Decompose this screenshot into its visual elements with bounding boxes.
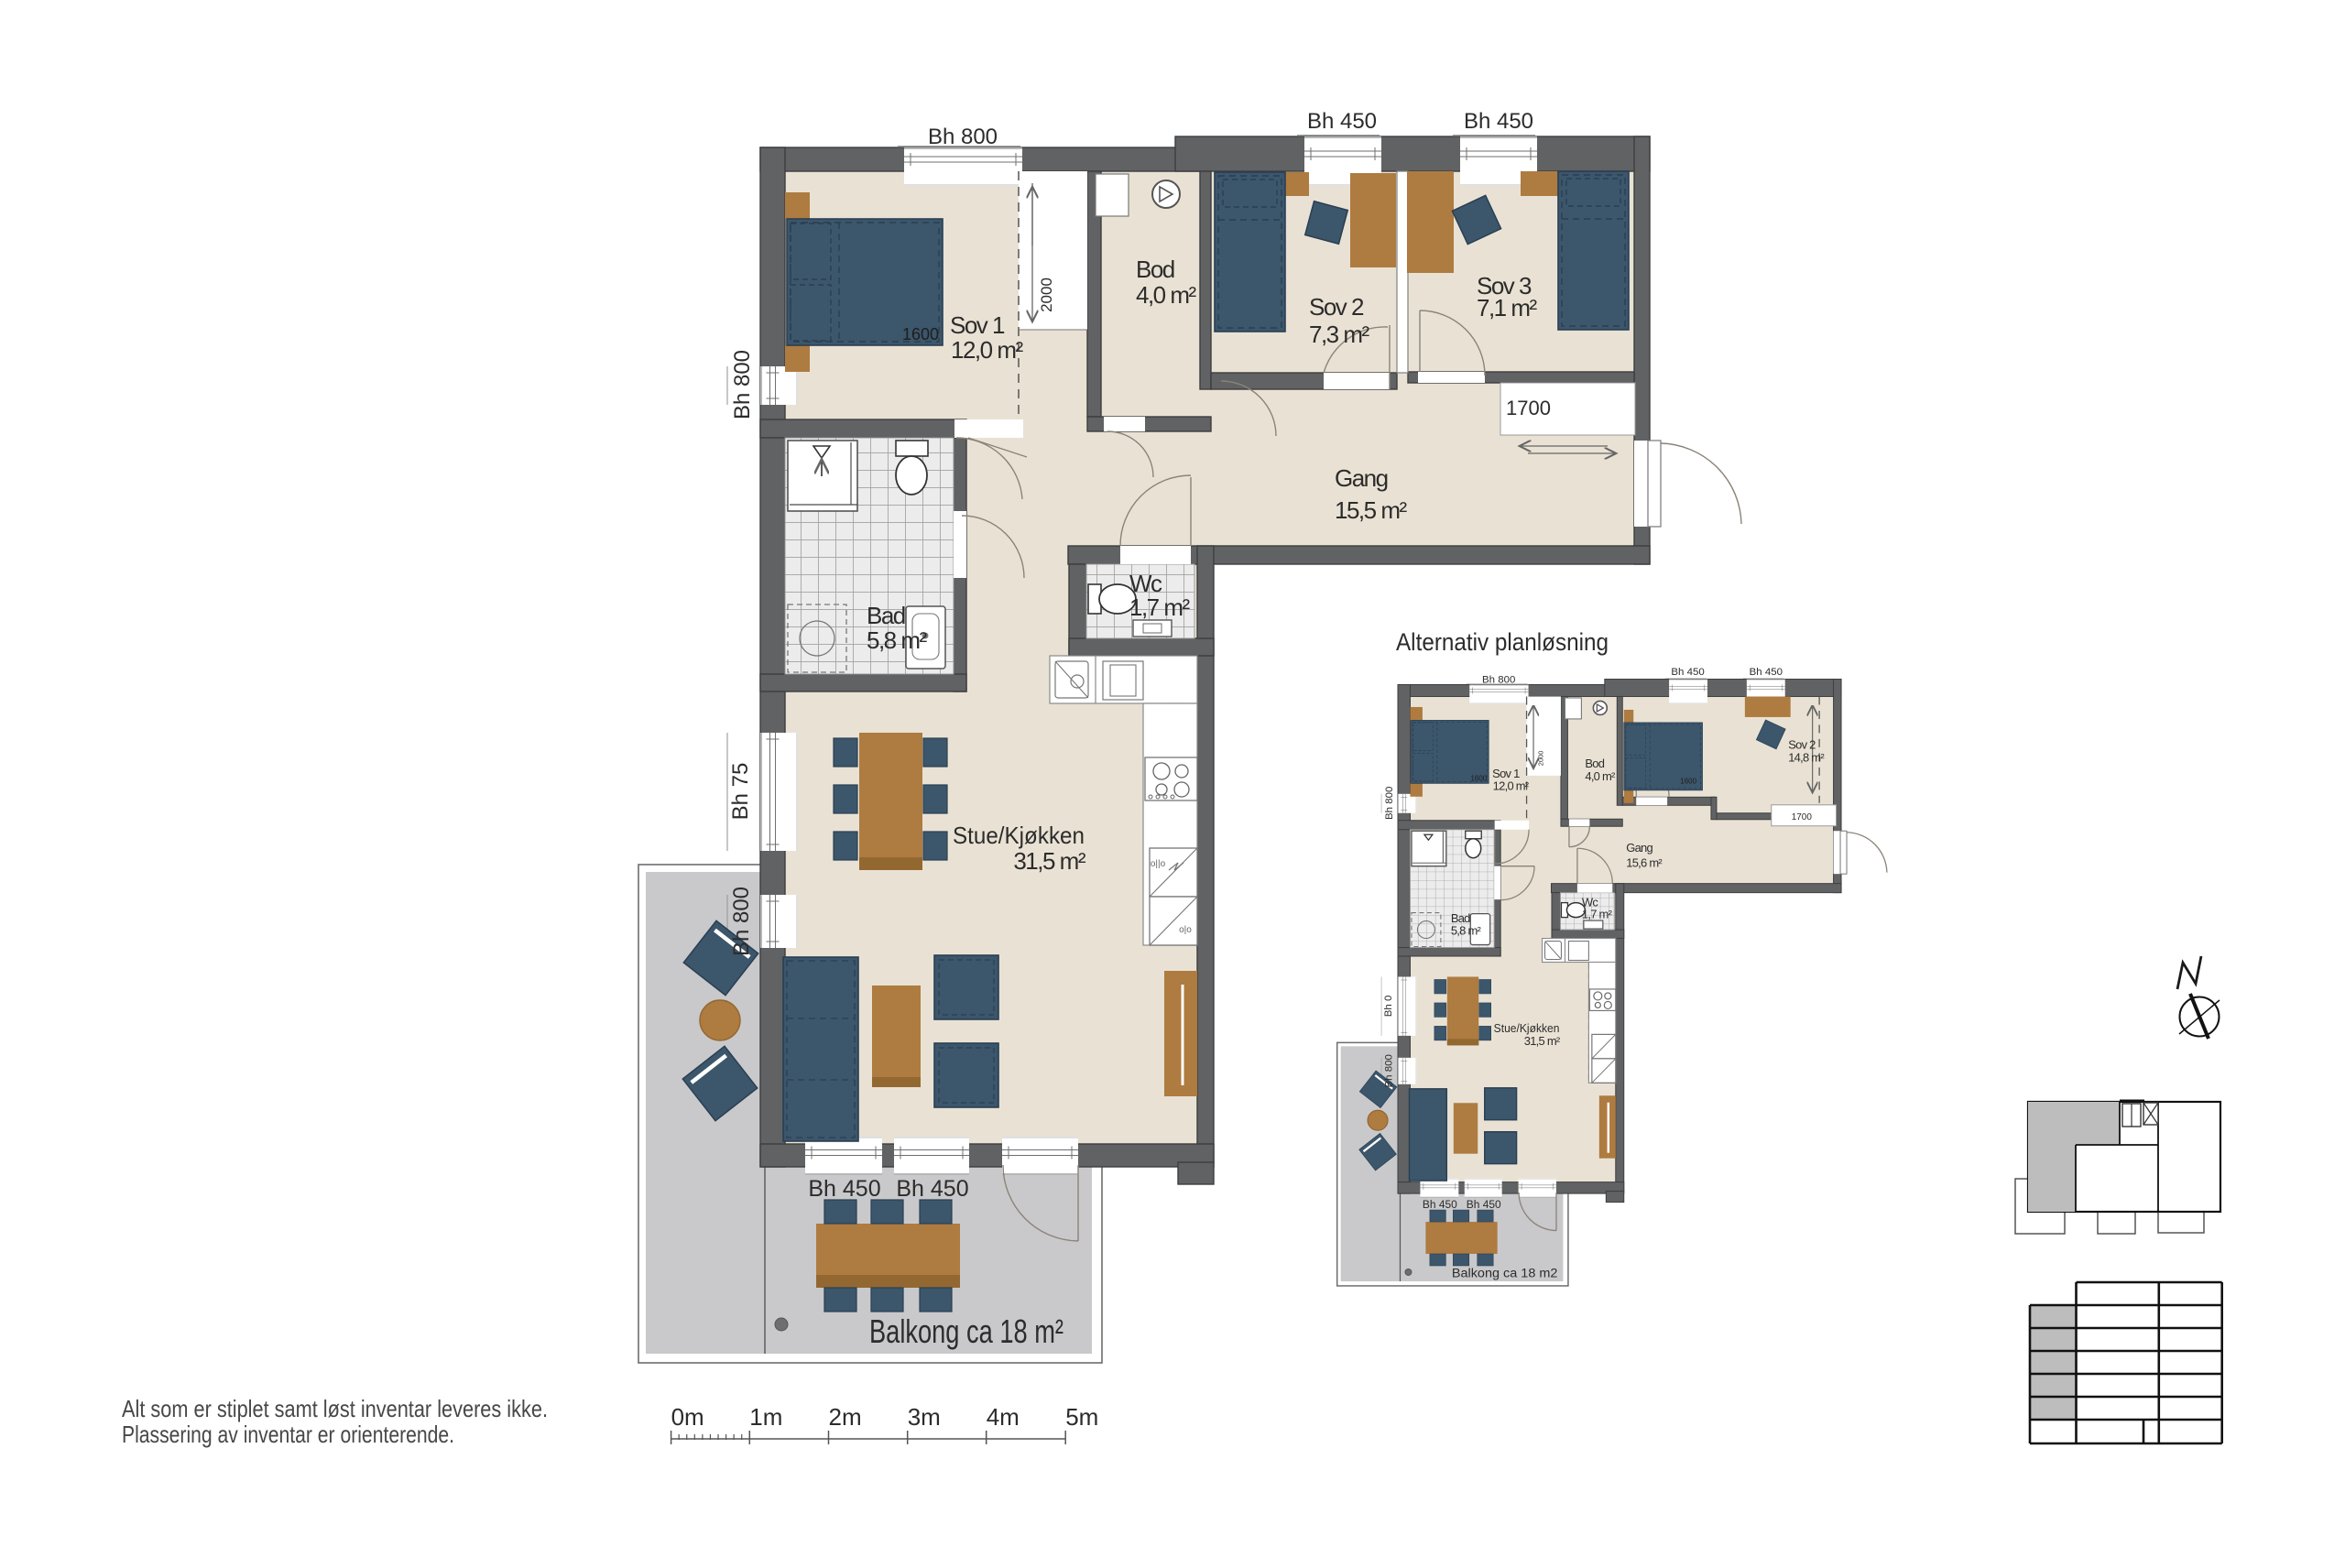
svg-text:Bh 450: Bh 450 [1307, 109, 1377, 134]
svg-text:1600: 1600 [902, 325, 939, 343]
svg-text:5,8 m²: 5,8 m² [1451, 924, 1482, 938]
svg-text:15,5 m²: 15,5 m² [1335, 496, 1407, 524]
svg-text:Bh 800: Bh 800 [730, 350, 755, 419]
svg-text:Stue/Kjøkken: Stue/Kjøkken [953, 822, 1085, 849]
svg-text:Alt som er stiplet samt løst i: Alt som er stiplet samt løst inventar le… [122, 1395, 548, 1422]
svg-text:5m: 5m [1065, 1403, 1098, 1431]
svg-text:Bh 800: Bh 800 [1384, 1054, 1395, 1087]
svg-text:Plassering av inventar er orie: Plassering av inventar er orienterende. [122, 1421, 454, 1448]
svg-text:Stue/Kjøkken: Stue/Kjøkken [1494, 1021, 1560, 1035]
svg-text:5,8 m²: 5,8 m² [867, 626, 928, 654]
svg-text:1,7 m²: 1,7 m² [1129, 593, 1191, 621]
svg-text:Bh 450: Bh 450 [1423, 1198, 1457, 1211]
svg-text:Bh 450: Bh 450 [1750, 667, 1783, 678]
svg-text:Bh 0: Bh 0 [1383, 996, 1394, 1018]
svg-text:o||o: o||o [1151, 859, 1166, 869]
svg-text:4,0 m²: 4,0 m² [1136, 281, 1197, 309]
svg-text:15,6 m²: 15,6 m² [1626, 856, 1663, 870]
svg-text:Sov 2: Sov 2 [1788, 737, 1816, 751]
svg-text:Bh 450: Bh 450 [808, 1176, 880, 1202]
svg-text:Balkong ca 18 m2: Balkong ca 18 m2 [1452, 1265, 1558, 1279]
svg-text:1600: 1600 [1680, 777, 1696, 785]
svg-text:14,8 m²: 14,8 m² [1788, 750, 1825, 764]
svg-text:31,5 m²: 31,5 m² [1524, 1034, 1561, 1048]
svg-text:Balkong ca 18 m²: Balkong ca 18 m² [869, 1312, 1063, 1350]
svg-text:2000: 2000 [1537, 751, 1545, 767]
svg-text:1700: 1700 [1792, 812, 1813, 822]
svg-text:Bh 75: Bh 75 [728, 763, 753, 821]
svg-text:Bh 800: Bh 800 [1384, 787, 1395, 820]
svg-text:Sov 1: Sov 1 [950, 311, 1005, 339]
svg-text:Bh 800: Bh 800 [928, 125, 998, 149]
svg-text:Sov 2: Sov 2 [1309, 293, 1364, 321]
svg-text:Bh 800: Bh 800 [729, 887, 754, 956]
svg-text:Gang: Gang [1626, 841, 1652, 855]
svg-text:Bh 800: Bh 800 [1482, 674, 1515, 685]
svg-text:Bod: Bod [1136, 256, 1174, 283]
svg-text:Bad: Bad [1451, 911, 1470, 925]
svg-text:Alternativ planløsning: Alternativ planløsning [1396, 628, 1609, 656]
svg-text:7,3 m²: 7,3 m² [1309, 321, 1370, 348]
svg-text:Bad: Bad [867, 602, 905, 629]
svg-text:Bh 450: Bh 450 [1671, 667, 1704, 678]
svg-text:Bh 450: Bh 450 [896, 1176, 968, 1202]
svg-text:4m: 4m [987, 1403, 1020, 1431]
svg-text:3m: 3m [908, 1403, 941, 1431]
svg-text:7,1 m²: 7,1 m² [1477, 294, 1538, 321]
svg-text:2000: 2000 [1038, 278, 1055, 312]
svg-text:1600: 1600 [1470, 774, 1487, 782]
svg-text:12,0 m²: 12,0 m² [951, 336, 1023, 364]
svg-text:12,0 m²: 12,0 m² [1493, 779, 1530, 792]
svg-text:31,5 m²: 31,5 m² [1013, 847, 1085, 875]
svg-text:4,0 m²: 4,0 m² [1585, 769, 1616, 783]
svg-text:1700: 1700 [1506, 397, 1551, 419]
svg-text:Sov 1: Sov 1 [1492, 767, 1520, 780]
svg-text:o|o: o|o [1179, 925, 1192, 935]
svg-text:1m: 1m [749, 1403, 782, 1431]
svg-text:Bh 450: Bh 450 [1464, 109, 1533, 134]
svg-text:1,7 m²: 1,7 m² [1582, 908, 1613, 921]
svg-text:0m: 0m [671, 1403, 704, 1431]
svg-text:Bh 450: Bh 450 [1467, 1198, 1501, 1211]
svg-text:Bod: Bod [1585, 757, 1604, 770]
svg-text:2m: 2m [829, 1403, 862, 1431]
svg-text:Gang: Gang [1335, 464, 1388, 492]
